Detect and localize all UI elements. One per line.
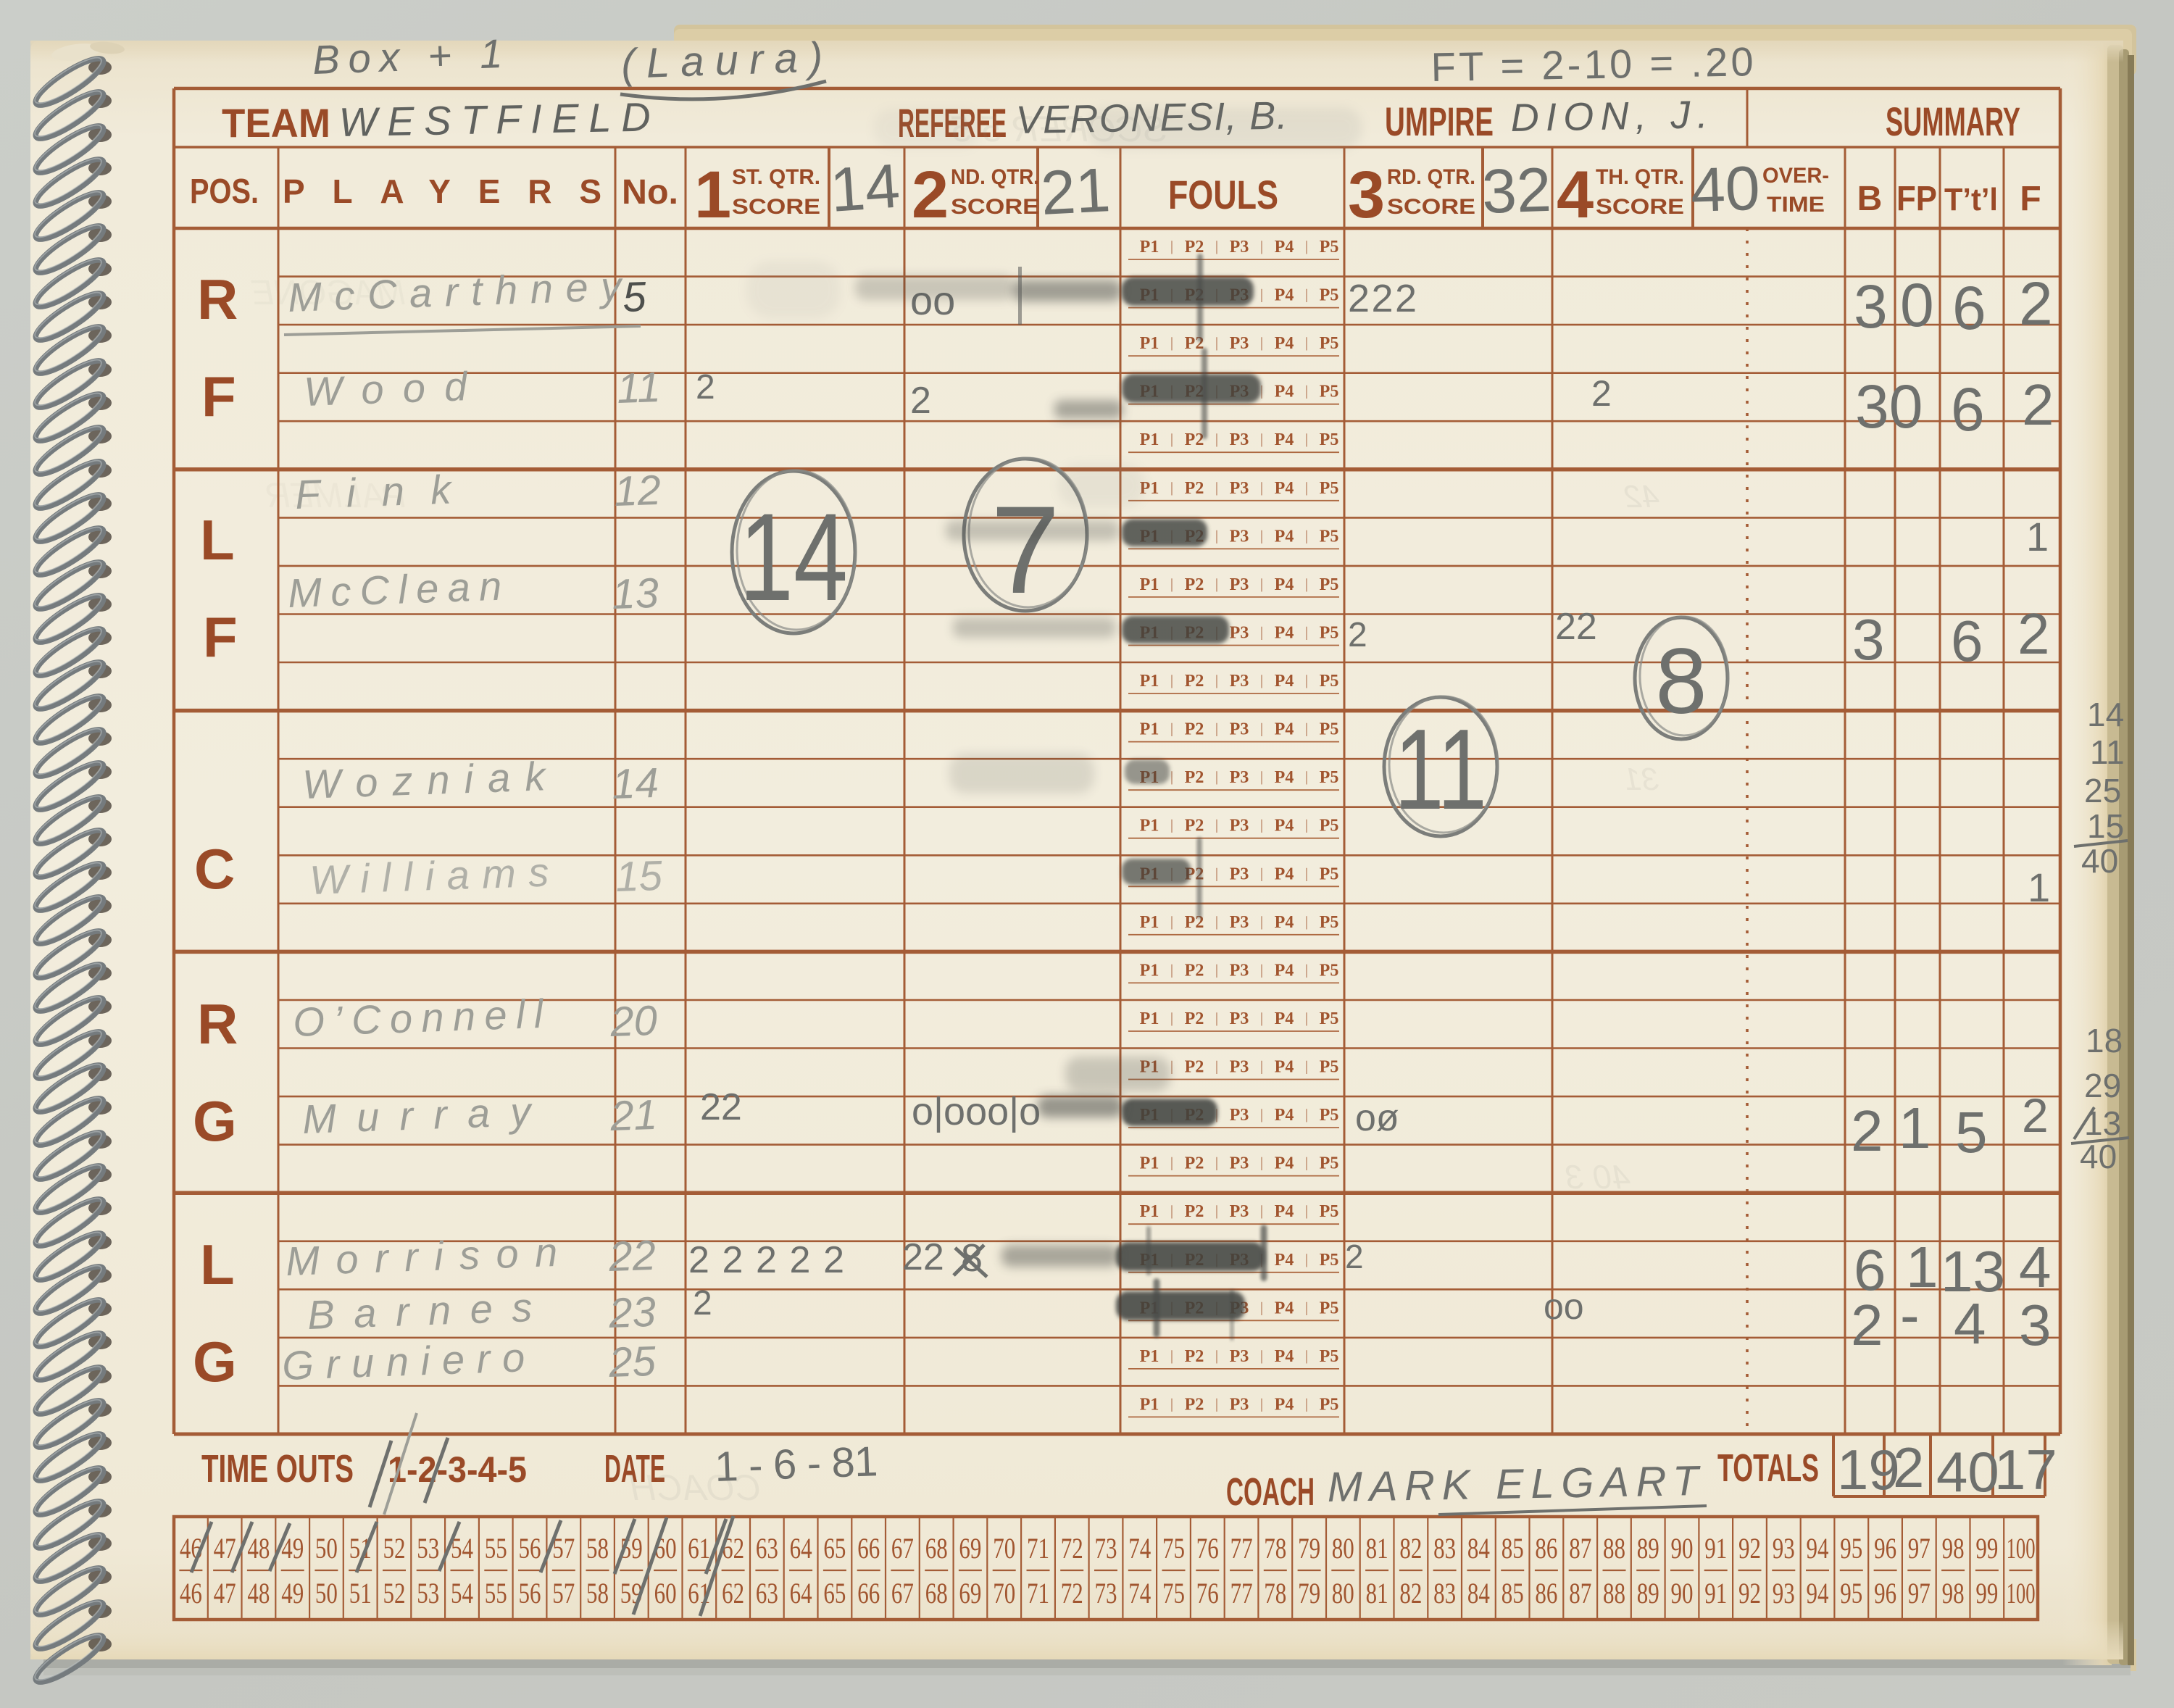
svg-text:|: | [1260,865,1263,881]
svg-text:1-2-3-4-5: 1-2-3-4-5 [388,1449,527,1490]
svg-text:P3: P3 [1230,624,1249,643]
svg-text:P3: P3 [1230,334,1249,353]
svg-text:P5: P5 [1320,1395,1339,1414]
svg-text:|: | [1260,1348,1263,1364]
svg-text:6: 6 [1951,609,1983,673]
svg-text:P5: P5 [1320,527,1339,546]
svg-text:|: | [1260,576,1263,592]
svg-text:P2: P2 [1185,479,1204,498]
svg-text:7: 7 [991,480,1060,620]
svg-text:|: | [1215,962,1218,978]
svg-text:P2: P2 [1185,1058,1204,1077]
svg-text:|: | [1260,962,1263,978]
svg-text:100: 100 [2007,1532,2036,1565]
svg-text:|: | [1305,335,1308,351]
svg-text:P3: P3 [1230,913,1249,932]
svg-text:P2: P2 [1185,961,1204,980]
svg-text:P3: P3 [1230,479,1249,498]
svg-text:|: | [1305,817,1308,833]
svg-text:40: 40 [1936,1440,1999,1504]
svg-text:|: | [1305,865,1308,881]
svg-text:C: C [194,837,235,901]
svg-text:SCORE: SCORE [732,195,820,219]
svg-text:100: 100 [2007,1577,2036,1609]
svg-text:2: 2 [693,1284,712,1322]
svg-text:2: 2 [2022,1088,2049,1142]
svg-text:11: 11 [2090,733,2125,771]
svg-text:P4: P4 [1275,1299,1294,1317]
svg-text:82: 82 [1399,1532,1422,1565]
svg-text:Williams: Williams [309,849,549,903]
svg-text:5: 5 [1955,1100,1988,1165]
svg-text:P2: P2 [1185,1395,1204,1414]
svg-text:P1: P1 [1140,1009,1159,1028]
svg-text:80: 80 [1332,1532,1354,1565]
svg-text:|: | [1305,1059,1308,1075]
svg-text:|: | [1305,672,1308,688]
svg-text:40: 40 [1689,154,1761,225]
svg-text:63: 63 [756,1532,778,1565]
svg-text:P4: P4 [1275,1347,1294,1366]
svg-text:80: 80 [1332,1577,1354,1609]
svg-text:P2: P2 [1185,768,1204,787]
svg-text:84: 84 [1467,1577,1490,1609]
svg-text:95: 95 [1840,1577,1862,1609]
svg-text:14: 14 [611,759,659,808]
svg-text:47: 47 [214,1577,236,1609]
svg-text:83: 83 [1433,1577,1456,1609]
svg-text:1: 1 [2028,865,2050,910]
svg-text:98: 98 [1942,1577,1965,1609]
svg-text:|: | [1305,480,1308,496]
svg-text:78: 78 [1264,1577,1286,1609]
svg-text:|: | [1305,1010,1308,1026]
svg-text:|: | [1215,1059,1218,1075]
svg-text:P4: P4 [1275,1058,1294,1077]
svg-text:18: 18 [2086,1022,2123,1059]
svg-text:P3: P3 [1230,1154,1249,1173]
svg-text:|: | [1305,383,1308,399]
svg-text:61: 61 [688,1532,710,1565]
svg-text:|: | [1215,769,1218,785]
svg-text:P4: P4 [1275,672,1294,691]
svg-text:|: | [1215,672,1218,688]
svg-text:48: 48 [247,1532,270,1565]
svg-text:FOULS: FOULS [1168,172,1278,217]
svg-text:53: 53 [417,1532,439,1565]
svg-text:1 - 6 - 81: 1 - 6 - 81 [714,1438,878,1491]
svg-text:55: 55 [485,1532,507,1565]
svg-text:|: | [1305,769,1308,785]
svg-text:P3: P3 [1230,1106,1249,1125]
svg-text:82: 82 [1399,1577,1422,1609]
svg-text:P3: P3 [1230,961,1249,980]
svg-text:4: 4 [1557,158,1594,232]
svg-text:|: | [1305,914,1308,930]
svg-text:77: 77 [1230,1577,1253,1609]
svg-text:P4: P4 [1275,1251,1294,1270]
svg-text:54: 54 [451,1577,473,1609]
svg-text:20: 20 [609,997,658,1046]
svg-text:P5: P5 [1320,1347,1339,1366]
svg-text:TIME OUTS: TIME OUTS [201,1447,354,1491]
svg-text:53: 53 [417,1577,439,1609]
svg-text:ST. QTR.: ST. QTR. [732,165,820,189]
svg-text:G: G [193,1330,237,1394]
svg-text:P3: P3 [1230,672,1249,691]
svg-text:74: 74 [1128,1577,1151,1609]
svg-text:|: | [1170,817,1173,833]
svg-text:|: | [1215,1155,1218,1171]
svg-text:|: | [1305,1396,1308,1412]
svg-text:1: 1 [1899,1096,1931,1160]
svg-text:3: 3 [2019,1293,2052,1357]
svg-text:P4: P4 [1275,1202,1294,1221]
svg-text:P4: P4 [1275,575,1294,594]
svg-text:|: | [1170,914,1173,930]
svg-text:22: 22 [607,1232,657,1280]
svg-text:92: 92 [1738,1532,1761,1565]
svg-text:|: | [1260,672,1263,688]
svg-text:ND. QTR.: ND. QTR. [951,165,1039,189]
svg-text:94: 94 [1807,1577,1829,1609]
svg-text:72: 72 [1061,1532,1083,1565]
svg-text:P2: P2 [1185,1009,1204,1028]
svg-text:|: | [1170,1059,1173,1075]
svg-text:|: | [1305,528,1308,543]
svg-text:P1: P1 [1140,1395,1159,1414]
svg-text:92: 92 [1738,1577,1761,1609]
svg-text:76: 76 [1196,1532,1219,1565]
svg-text:OVER-: OVER- [1762,164,1829,188]
svg-text:3: 3 [1852,607,1885,672]
svg-text:L: L [200,508,235,572]
svg-text:P3: P3 [1230,1009,1249,1028]
svg-text:P3: P3 [1230,430,1249,449]
svg-text:|: | [1305,287,1308,303]
svg-text:P4: P4 [1275,768,1294,787]
svg-text:1: 1 [2026,514,2049,559]
svg-text:75: 75 [1162,1577,1185,1609]
svg-text:SCORE: SCORE [1387,195,1475,219]
svg-text:8: 8 [1655,630,1707,733]
svg-text:74: 74 [1128,1532,1151,1565]
svg-text:|: | [1260,1396,1263,1412]
svg-text:|: | [1260,817,1263,833]
svg-text:P4: P4 [1275,286,1294,305]
svg-text:POS.: POS. [190,172,259,211]
svg-text:P2: P2 [1185,817,1204,836]
svg-text:97: 97 [1908,1577,1931,1609]
svg-text:P2: P2 [1185,1347,1204,1366]
svg-text:46: 46 [180,1532,202,1565]
svg-text:15: 15 [2087,807,2124,845]
svg-text:87: 87 [1569,1532,1591,1565]
svg-text:40: 40 [2081,842,2118,880]
svg-text:|: | [1305,1107,1308,1122]
svg-text:P1: P1 [1140,430,1159,449]
svg-text:47: 47 [214,1532,236,1565]
svg-text:2: 2 [910,380,931,422]
svg-text:P1: P1 [1140,1202,1159,1221]
svg-text:85: 85 [1502,1532,1524,1565]
svg-text:P4: P4 [1275,817,1294,836]
svg-text:15: 15 [615,852,663,901]
svg-text:46: 46 [180,1577,202,1609]
svg-text:71: 71 [1027,1577,1049,1609]
svg-text:RD. QTR.: RD. QTR. [1387,165,1475,189]
svg-text:G: G [193,1089,237,1153]
svg-text:P2: P2 [1185,1154,1204,1173]
svg-text:P4: P4 [1275,238,1294,257]
svg-text:22: 22 [1555,606,1597,648]
svg-text:P3: P3 [1230,238,1249,257]
svg-text:76: 76 [1196,1577,1219,1609]
svg-text:|: | [1260,769,1263,785]
svg-text:2: 2 [2017,601,2050,666]
svg-text:91: 91 [1704,1577,1727,1609]
svg-text:93: 93 [1773,1532,1795,1565]
svg-text:|: | [1170,1348,1173,1364]
svg-text:99: 99 [1975,1577,1998,1609]
svg-text:P1: P1 [1140,1154,1159,1173]
svg-text:64: 64 [790,1532,812,1565]
svg-text:52: 52 [383,1532,406,1565]
svg-text:P1: P1 [1140,961,1159,980]
svg-text:0: 0 [1900,271,1934,339]
svg-text:P4: P4 [1275,961,1294,980]
svg-text:P4: P4 [1275,1106,1294,1125]
svg-text:P4: P4 [1275,913,1294,932]
svg-text:30: 30 [1855,372,1923,441]
svg-text:|: | [1305,431,1308,447]
svg-text:5: 5 [622,273,647,321]
svg-text:4: 4 [2019,1235,2052,1299]
svg-text:P4: P4 [1275,720,1294,739]
svg-text:3: 3 [1854,272,1888,341]
svg-text:B: B [1857,180,1883,218]
svg-text:P5: P5 [1320,817,1339,836]
svg-text:TH. QTR.: TH. QTR. [1596,165,1684,189]
svg-text:P2: P2 [1185,720,1204,739]
svg-text:|: | [1305,1203,1308,1219]
svg-text:R: R [197,992,238,1056]
svg-text:2: 2 [1851,1099,1883,1163]
svg-text:69: 69 [959,1532,981,1565]
svg-text:No.: No. [622,173,678,212]
svg-text:3: 3 [1348,158,1385,232]
svg-text:56: 56 [519,1577,541,1609]
svg-text:|: | [1260,480,1263,496]
svg-text:|: | [1215,480,1218,496]
svg-text:6: 6 [1952,274,1986,342]
svg-text:P5: P5 [1320,1009,1339,1028]
svg-text:84: 84 [1467,1532,1490,1565]
svg-text:|: | [1170,721,1173,737]
svg-text:11: 11 [616,364,661,412]
svg-text:95: 95 [1840,1532,1862,1565]
svg-text:|: | [1170,238,1173,254]
svg-text:86: 86 [1535,1577,1557,1609]
svg-text:94: 94 [1807,1532,1829,1565]
svg-text:69: 69 [959,1577,981,1609]
svg-text:|: | [1215,865,1218,881]
svg-text:P5: P5 [1320,238,1339,257]
svg-text:P5: P5 [1320,1058,1339,1077]
svg-text:|: | [1260,431,1263,447]
svg-text:72: 72 [1061,1577,1083,1609]
svg-text:|: | [1170,576,1173,592]
svg-text:|: | [1215,817,1218,833]
svg-text:P1: P1 [1140,334,1159,353]
svg-text:|: | [1305,1299,1308,1315]
svg-text:49: 49 [281,1577,304,1609]
svg-text:48: 48 [247,1577,270,1609]
svg-text:68: 68 [925,1577,948,1609]
svg-text:|: | [1170,480,1173,496]
svg-text:P2: P2 [1185,672,1204,691]
svg-text:P1: P1 [1140,817,1159,836]
svg-text:P5: P5 [1320,1154,1339,1173]
svg-text:|: | [1215,914,1218,930]
svg-text:P5: P5 [1320,1299,1339,1317]
svg-text:P1: P1 [1140,575,1159,594]
svg-text:|: | [1260,287,1263,303]
svg-text:2: 2 [2022,372,2054,437]
svg-text:UMPIRE: UMPIRE [1385,99,1494,144]
svg-text:25: 25 [2084,772,2121,809]
svg-text:22: 22 [902,1236,944,1278]
svg-text:97: 97 [1908,1532,1931,1565]
svg-text:|: | [1305,625,1308,641]
svg-text:P3: P3 [1230,1347,1249,1366]
svg-text:55: 55 [485,1577,507,1609]
svg-text:P2: P2 [1185,575,1204,594]
svg-text:75: 75 [1162,1532,1185,1565]
svg-text:2: 2 [1591,373,1612,414]
svg-text:88: 88 [1603,1577,1625,1609]
svg-text:P3: P3 [1230,1395,1249,1414]
svg-text:|: | [1305,1348,1308,1364]
svg-text:P2: P2 [1185,238,1204,257]
svg-text:58: 58 [586,1577,609,1609]
svg-text:P1: P1 [1140,913,1159,932]
svg-text:99: 99 [1975,1532,1998,1565]
svg-text:SCORE: SCORE [951,195,1039,219]
svg-text:oo: oo [1544,1286,1584,1327]
svg-text:TEAM: TEAM [222,100,330,146]
svg-text:P3: P3 [1230,1058,1249,1077]
svg-text:29: 29 [2084,1067,2121,1104]
svg-text:222: 222 [1348,277,1417,320]
svg-text:P4: P4 [1275,1154,1294,1173]
svg-text:-: - [1900,1283,1920,1347]
svg-text:73: 73 [1095,1577,1117,1609]
svg-text:2: 2 [2019,270,2053,338]
svg-text:|: | [1170,672,1173,688]
svg-text:2: 2 [1851,1293,1883,1357]
svg-text:81: 81 [1366,1532,1388,1565]
svg-text:P2: P2 [1185,1202,1204,1221]
svg-text:65: 65 [823,1577,846,1609]
svg-text:SUMMARY: SUMMARY [1886,99,2020,144]
svg-text:13: 13 [2084,1104,2121,1142]
svg-text:T’t’l: T’t’l [1944,182,1998,217]
svg-text:P5: P5 [1320,672,1339,691]
svg-text:19: 19 [1837,1438,1900,1501]
svg-text:81: 81 [1366,1577,1388,1609]
svg-text:|: | [1305,962,1308,978]
svg-text:|: | [1260,1155,1263,1171]
svg-text:P4: P4 [1275,430,1294,449]
svg-text:|: | [1170,1155,1173,1171]
svg-text:P1: P1 [1140,672,1159,691]
svg-text:67: 67 [891,1532,914,1565]
svg-text:P4: P4 [1275,334,1294,353]
svg-text:62: 62 [722,1577,744,1609]
svg-text:14: 14 [828,151,902,225]
svg-text:40: 40 [2080,1138,2117,1175]
svg-text:|: | [1215,335,1218,351]
svg-text:21: 21 [1039,155,1112,228]
svg-text:P5: P5 [1320,1202,1339,1221]
svg-text:70: 70 [993,1577,1015,1609]
svg-text:F: F [203,605,238,669]
svg-text:22: 22 [700,1086,742,1128]
svg-text:14: 14 [2087,696,2124,733]
svg-text:|: | [1170,1010,1173,1026]
svg-text:P3: P3 [1230,527,1249,546]
svg-text:P3: P3 [1230,768,1249,787]
svg-text:P3: P3 [1230,865,1249,883]
svg-text:|: | [1305,238,1308,254]
svg-text:57: 57 [552,1577,575,1609]
svg-text:25: 25 [607,1338,657,1386]
svg-text:91: 91 [1704,1532,1727,1565]
svg-text:(Laura): (Laura) [620,33,823,88]
svg-text:P5: P5 [1320,575,1339,594]
svg-text:79: 79 [1298,1577,1320,1609]
svg-text:90: 90 [1671,1532,1694,1565]
svg-text:P5: P5 [1320,720,1339,739]
svg-text:|: | [1305,721,1308,737]
svg-text:P5: P5 [1320,479,1339,498]
svg-text:2: 2 [1348,616,1367,654]
svg-text:|: | [1260,625,1263,641]
svg-text:|: | [1170,962,1173,978]
svg-text:|: | [1215,1203,1218,1219]
svg-text:58: 58 [586,1532,609,1565]
svg-text:93: 93 [1773,1577,1795,1609]
svg-text:P4: P4 [1275,865,1294,883]
svg-text:P1: P1 [1140,720,1159,739]
svg-text:TOTALS: TOTALS [1717,1446,1819,1490]
svg-text:|: | [1305,1155,1308,1171]
svg-text:|: | [1260,1203,1263,1219]
svg-text:85: 85 [1502,1577,1524,1609]
svg-text:31: 31 [1624,762,1659,797]
svg-text:4: 4 [1954,1291,1986,1356]
svg-text:|: | [1260,335,1263,351]
svg-text:F: F [201,364,236,428]
svg-text:|: | [1260,1299,1263,1315]
svg-text:TIME: TIME [1767,193,1825,217]
svg-text:68: 68 [925,1532,948,1565]
svg-text:P4: P4 [1275,1395,1294,1414]
svg-text:P5: P5 [1320,286,1339,305]
svg-text:77: 77 [1230,1532,1253,1565]
svg-text:P1: P1 [1140,1347,1159,1366]
